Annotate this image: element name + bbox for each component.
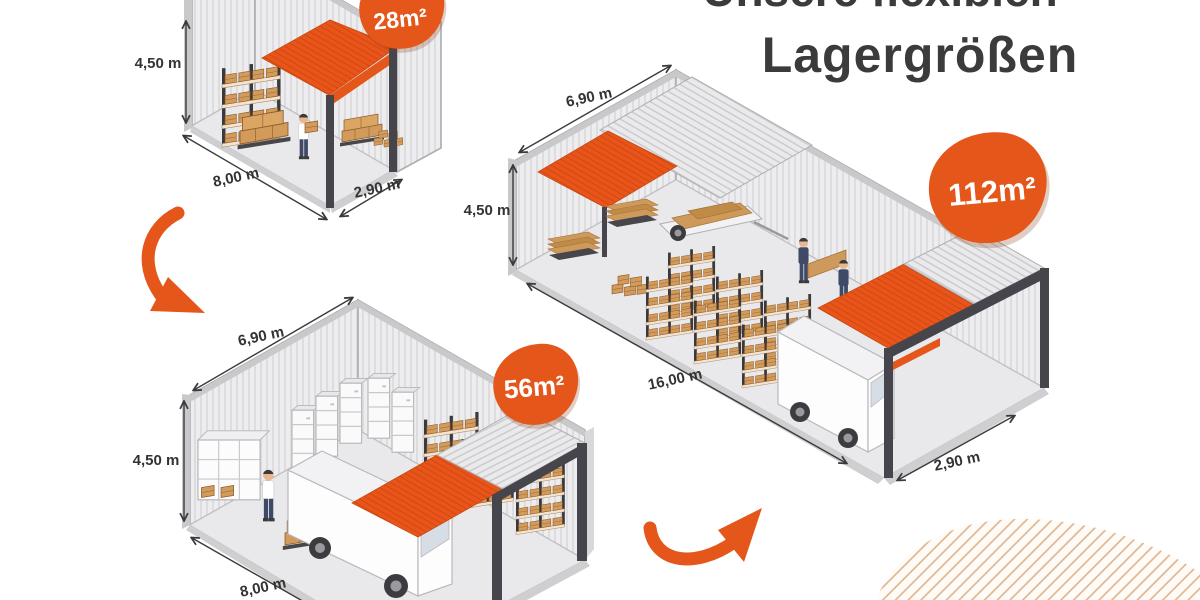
dim-length-28: 8,00 m (211, 164, 260, 190)
storage-unit-56: 6,90 m 4,50 m 8,00 m 56m² (133, 298, 594, 600)
dim-height-56: 4,50 m (133, 452, 180, 469)
dim-depth-112: 6,90 m (564, 84, 613, 110)
badge-56-label: 56m² (503, 369, 566, 404)
dim-height-112: 4,50 m (464, 202, 511, 219)
infographic-canvas: 4,50 m 8,00 m 2,90 m 28m² (0, 0, 1200, 600)
title-block: Unsere flexiblen Lagergrößen (702, 0, 1078, 83)
dim-length-56: 8,00 m (238, 574, 287, 600)
curved-arrow-up-right-icon (650, 508, 762, 562)
title-line1: Unsere flexiblen (702, 0, 1057, 16)
hatch-blob-decor (876, 519, 1200, 600)
curved-arrow-down-right-icon (148, 213, 205, 313)
dim-length-112: 16,00 m (646, 366, 703, 394)
title-line2: Lagergrößen (762, 27, 1079, 83)
storage-unit-28: 4,50 m 8,00 m 2,90 m 28m² (135, 0, 454, 219)
dim-height-28: 4,50 m (135, 55, 182, 72)
storage-sizes-illustration: 4,50 m 8,00 m 2,90 m 28m² (0, 0, 1200, 600)
